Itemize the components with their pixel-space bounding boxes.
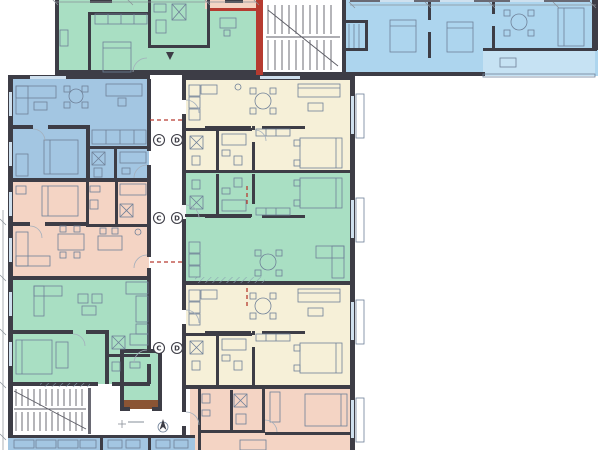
svg-text:C: C <box>156 215 161 223</box>
svg-text:D: D <box>174 345 180 353</box>
elevator-cab <box>124 353 158 405</box>
expansion-joint-wall <box>256 0 263 75</box>
axis-marker-row-3: C D <box>154 343 183 354</box>
balconies <box>356 74 595 442</box>
svg-text:C: C <box>156 345 161 353</box>
window-band-hatched <box>195 277 265 283</box>
svg-text:D: D <box>174 215 180 223</box>
unit-right-middle <box>186 173 350 281</box>
elevation-marker-icon <box>118 420 144 428</box>
svg-text:C: C <box>156 137 161 145</box>
floor-plan-page: C D C D C D <box>0 0 600 450</box>
stairwell-bottom <box>14 388 91 434</box>
stairwell-top <box>266 5 340 70</box>
stair-rail <box>88 388 91 434</box>
unit-top-left <box>55 0 256 74</box>
axis-marker-row-2: C D <box>154 213 183 224</box>
floor-plan-canvas: C D C D C D <box>0 0 600 450</box>
north-arrow-icon <box>158 419 168 432</box>
svg-text:D: D <box>174 137 180 145</box>
axis-marker-row-1: C D <box>154 135 183 146</box>
